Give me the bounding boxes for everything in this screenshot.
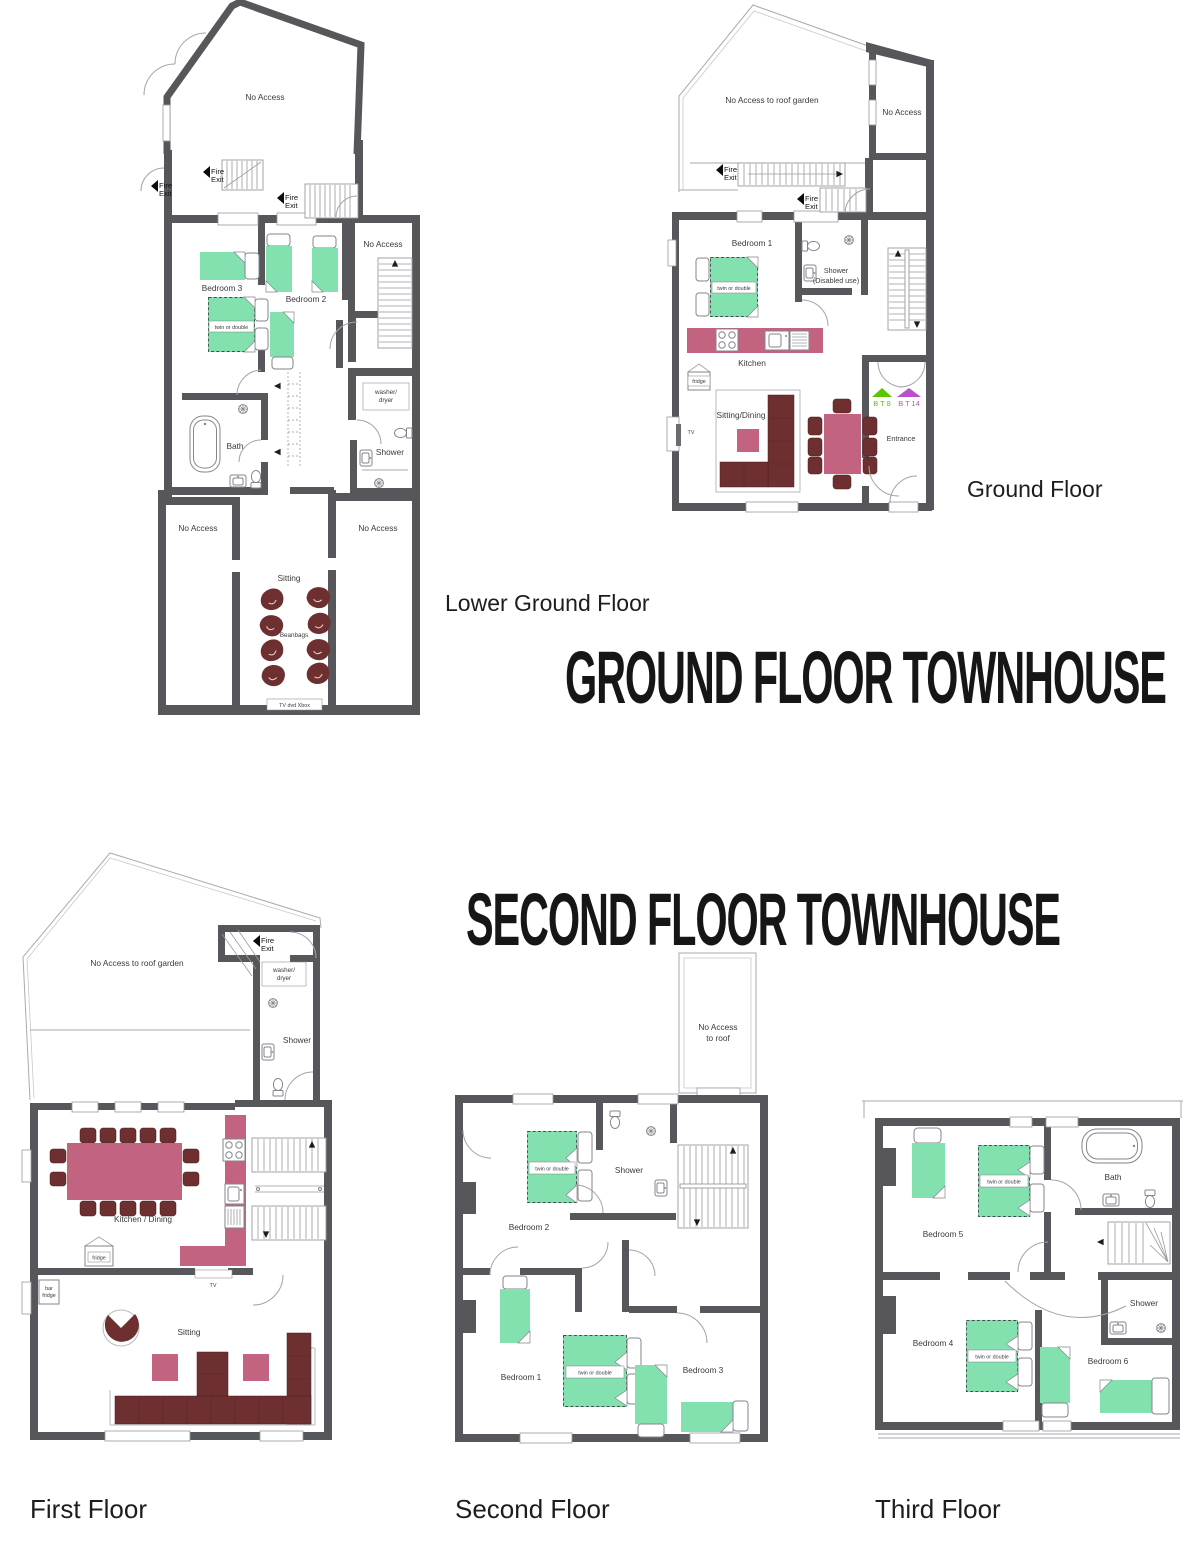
gf-sitting-dining: Sitting/Dining TV [667, 390, 877, 492]
ottoman [243, 1354, 269, 1381]
kitchen-dining-label: Kitchen / Dining [114, 1214, 172, 1224]
bt14-marker [897, 388, 921, 397]
svg-text:fridge: fridge [92, 1256, 106, 1262]
third-floor-plan: twin or double Bedroom 5 Bath Bedroom 4 … [860, 1095, 1185, 1440]
tf-bedroom4-label: Bedroom 4 [913, 1338, 954, 1348]
ground-floor-plan: No Access to roof garden No Access [660, 0, 970, 515]
gf-fire-exit-2: Fire Exit [797, 193, 819, 211]
ff-bar-fridge: bar fridge [39, 1280, 59, 1304]
ottoman [152, 1354, 178, 1381]
entrance-label: Entrance [887, 434, 916, 443]
tf-bedroom6: Bedroom 6 [1040, 1347, 1169, 1417]
ff-washer-dryer: washer/ dryer [262, 962, 306, 986]
svg-text:dryer: dryer [277, 975, 291, 982]
bathtub [190, 416, 220, 472]
sf-no-access-roof-label: No Access [698, 1022, 737, 1032]
lg-no-access-bl-label: No Access [178, 523, 217, 533]
gf-shower-disabled: Shower (Disabled use) [802, 236, 859, 285]
sf-bedroom1-label: Bedroom 1 [501, 1372, 542, 1382]
dining-table-large [50, 1128, 199, 1216]
svg-text:Exit: Exit [211, 175, 225, 184]
second-floor-plan: No Access to roof twin or double Bedroo [440, 950, 775, 1465]
lg-shower-room: Shower [357, 420, 412, 487]
svg-text:twin or double: twin or double [987, 1180, 1021, 1186]
tf-bathroom: Bath [1051, 1129, 1155, 1210]
sofa-l-shape [110, 1333, 315, 1425]
gf-entrance: B T 8 B T 14 Entrance [869, 362, 925, 503]
third-floor-caption: Third Floor [875, 1494, 1001, 1525]
gf-stairs-right [888, 248, 926, 330]
gf-bedroom1: Bedroom 1 twin or double [696, 238, 828, 326]
svg-text:Exit: Exit [285, 201, 299, 210]
bedroom1-label: Bedroom 1 [732, 238, 773, 248]
kitchen-counter [180, 1115, 246, 1266]
gf-fire-exit-1: Fire Exit [716, 164, 738, 182]
lg-no-access-top-label: No Access [245, 92, 284, 102]
tf-shower-label: Shower [1130, 1298, 1158, 1308]
ff-sitting-label: Sitting [177, 1327, 200, 1337]
bar-fridge-label: bar [45, 1286, 53, 1292]
floorplan-page: Fire Exit Fire Exit Fire Exit No Access … [0, 0, 1200, 1550]
shower-label: Shower [376, 447, 404, 457]
fridge-label: fridge [692, 379, 706, 385]
first-floor-plan: No Access to roof garden Fire Exit washe… [15, 845, 345, 1465]
bt14-label: B T 14 [898, 399, 920, 408]
lg-bathroom: Bath [190, 405, 261, 488]
tf-bedroom4: Bedroom 4 twin or double [913, 1320, 1032, 1392]
lg-no-access-mid-label: No Access [363, 239, 402, 249]
ff-tv: TV [195, 1270, 232, 1289]
svg-text:twin or double: twin or double [975, 1355, 1009, 1361]
sf-bedroom2-label: Bedroom 2 [509, 1222, 550, 1232]
lg-no-access-br-label: No Access [358, 523, 397, 533]
lg-washer-dryer: washer/ dryer [363, 383, 409, 410]
ff-shower-label: Shower [283, 1035, 311, 1045]
bt8-marker [872, 388, 892, 397]
lg-hall-stairs [237, 370, 300, 468]
svg-text:twin or double: twin or double [717, 286, 751, 292]
ff-sitting: Sitting [103, 1310, 315, 1425]
tv-label: TV [688, 430, 695, 436]
second-floor-caption: Second Floor [455, 1494, 610, 1525]
bath-label: Bath [226, 441, 243, 451]
swivel-chair [103, 1310, 139, 1346]
sf-bedroom3-label: Bedroom 3 [683, 1365, 724, 1375]
beanbags-label: Beanbags [280, 632, 308, 639]
svg-text:washer/: washer/ [272, 967, 295, 974]
svg-text:Exit: Exit [805, 202, 819, 211]
tv-dvd-xbox-label: TV dvd Xbox [279, 703, 310, 709]
sf-bedroom3: Bedroom 3 [635, 1365, 748, 1437]
first-floor-caption: First Floor [30, 1494, 147, 1525]
gf-roof-garden-label: No Access to roof garden [725, 95, 819, 105]
tf-bedroom5: twin or double Bedroom 5 [912, 1128, 1044, 1239]
ff-shower-room: Shower [262, 999, 313, 1100]
bedroom2-label: Bedroom 2 [286, 294, 327, 304]
tf-bedroom5-label: Bedroom 5 [923, 1229, 964, 1239]
ff-stairs [252, 1138, 326, 1240]
lg-fire-exit-2: Fire Exit [151, 180, 173, 198]
svg-text:twin or double: twin or double [535, 1167, 569, 1173]
tf-stairs [1097, 1222, 1170, 1264]
section-title-second: SECOND FLOOR TOWNHOUSE [466, 883, 1060, 957]
tf-bedroom6-label: Bedroom 6 [1088, 1356, 1129, 1366]
lg-fire-exit-3: Fire Exit [277, 192, 299, 210]
gf-kitchen: Kitchen [687, 328, 823, 368]
bt8-label: B T 8 [873, 399, 890, 408]
tf-bath-label: Bath [1104, 1172, 1121, 1182]
twin-or-double-label: twin or double [215, 325, 249, 331]
kitchen-label: Kitchen [738, 358, 766, 368]
gf-no-access-label: No Access [882, 107, 921, 117]
svg-text:Exit: Exit [159, 189, 173, 198]
svg-text:dryer: dryer [379, 397, 393, 404]
lower-ground-floor-plan: Fire Exit Fire Exit Fire Exit No Access … [145, 0, 445, 730]
ground-floor-caption: Ground Floor [967, 476, 1103, 503]
sitting-label: Sitting [277, 573, 300, 583]
bathtub [1082, 1129, 1142, 1163]
sf-stairs [678, 1145, 748, 1228]
shower-disabled-label: Shower [824, 266, 849, 275]
svg-text:Exit: Exit [261, 944, 275, 953]
sitting-dining-label: Sitting/Dining [717, 410, 766, 420]
sofa [716, 390, 800, 492]
lower-ground-floor-caption: Lower Ground Floor [445, 590, 650, 617]
svg-text:fridge: fridge [42, 1293, 56, 1299]
svg-text:twin or double: twin or double [578, 1371, 612, 1377]
section-title-ground: GROUND FLOOR TOWNHOUSE [565, 641, 1166, 715]
lg-bedroom3: Bedroom 3 twin or double [200, 252, 268, 352]
gf-fridge: fridge [688, 364, 710, 390]
ff-roof-garden-label: No Access to roof garden [90, 958, 184, 968]
sf-bedroom1: twin or double Bedroom 1 [500, 1276, 641, 1407]
ff-tv-label: TV [210, 1283, 217, 1289]
svg-text:to roof: to roof [706, 1033, 730, 1043]
ff-fridge: fridge [85, 1237, 113, 1266]
svg-text:Exit: Exit [724, 173, 738, 182]
lg-fire-exit-1: Fire Exit [203, 166, 225, 184]
bed-twin-or-double: twin or double [208, 297, 268, 352]
washer-dryer-label: washer/ [374, 389, 397, 396]
ottoman [737, 429, 759, 452]
lg-tv-unit: TV dvd Xbox [267, 699, 322, 710]
svg-text:(Disabled use): (Disabled use) [813, 276, 859, 285]
ff-kitchen-dining: Kitchen / Dining [50, 1115, 246, 1266]
bedroom3-label: Bedroom 3 [202, 283, 243, 293]
lg-bedroom2: Bedroom 2 [266, 234, 338, 369]
sf-shower-label: Shower [615, 1165, 643, 1175]
tf-shower-room: Shower [1110, 1298, 1165, 1334]
